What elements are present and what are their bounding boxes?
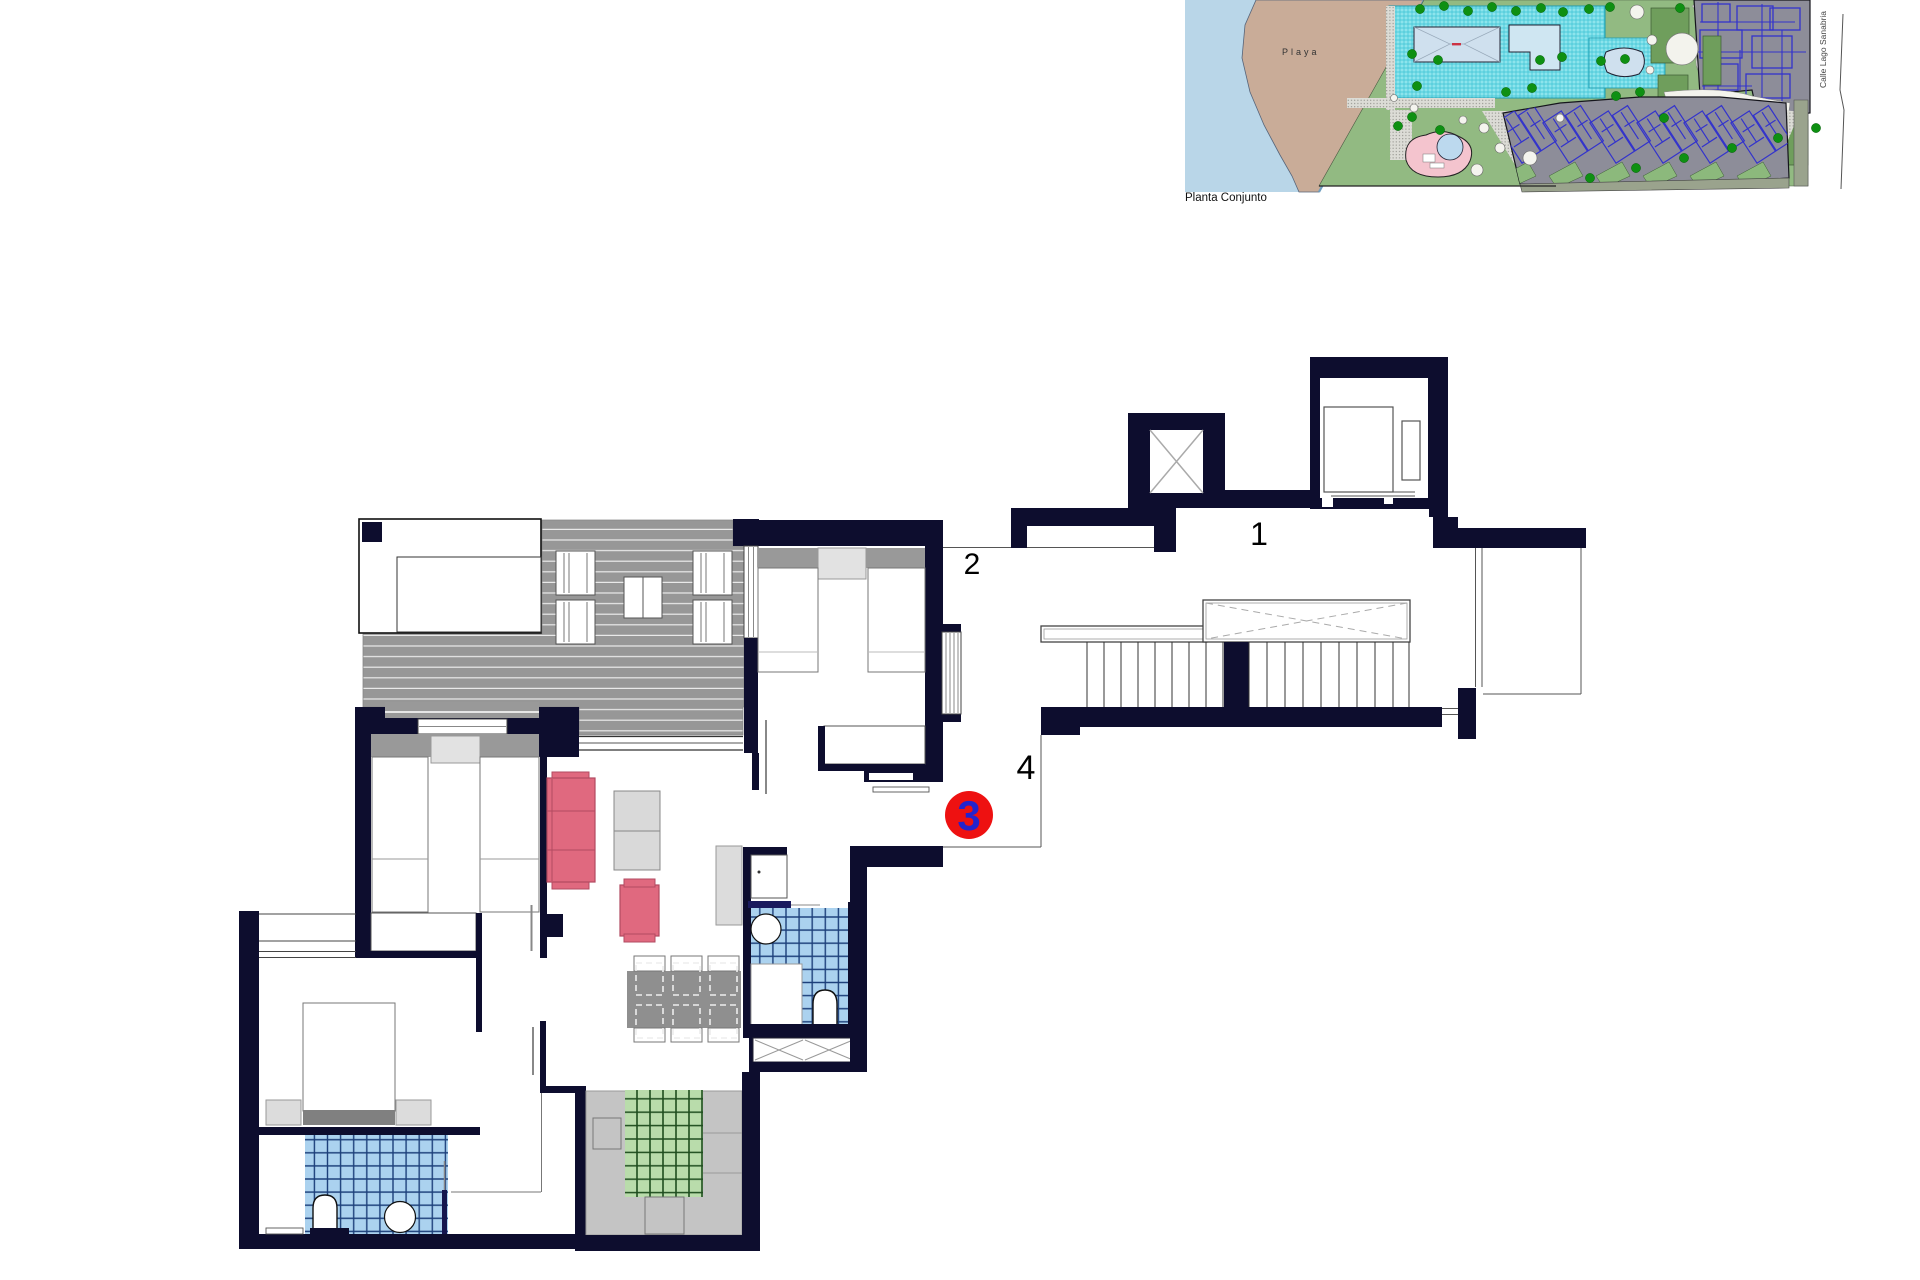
svg-text:1: 1	[1250, 516, 1268, 552]
svg-text:2: 2	[964, 548, 981, 581]
svg-text:Playa: Playa	[1282, 47, 1320, 57]
svg-text:4: 4	[1017, 749, 1036, 787]
svg-text:Calle Lago Sanabria: Calle Lago Sanabria	[1818, 11, 1828, 88]
svg-text:3: 3	[957, 792, 980, 839]
svg-text:Planta Conjunto: Planta Conjunto	[1185, 192, 1267, 204]
